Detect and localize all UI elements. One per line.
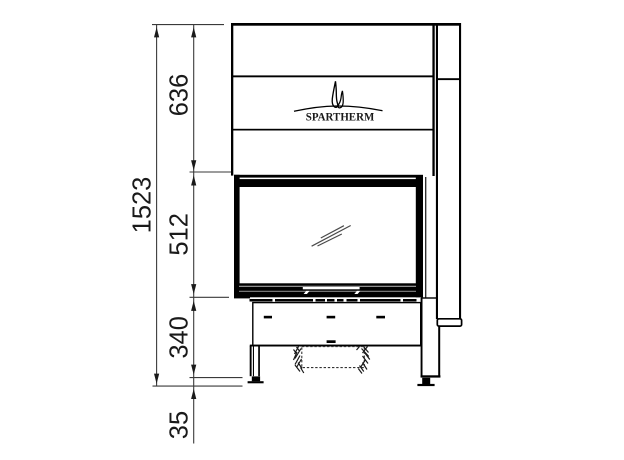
svg-text:340: 340 xyxy=(166,316,194,359)
svg-text:SPARTHERM: SPARTHERM xyxy=(306,109,375,123)
svg-text:636: 636 xyxy=(166,74,194,117)
svg-text:1523: 1523 xyxy=(129,177,157,234)
svg-text:512: 512 xyxy=(166,213,194,256)
svg-text:35: 35 xyxy=(166,411,194,439)
